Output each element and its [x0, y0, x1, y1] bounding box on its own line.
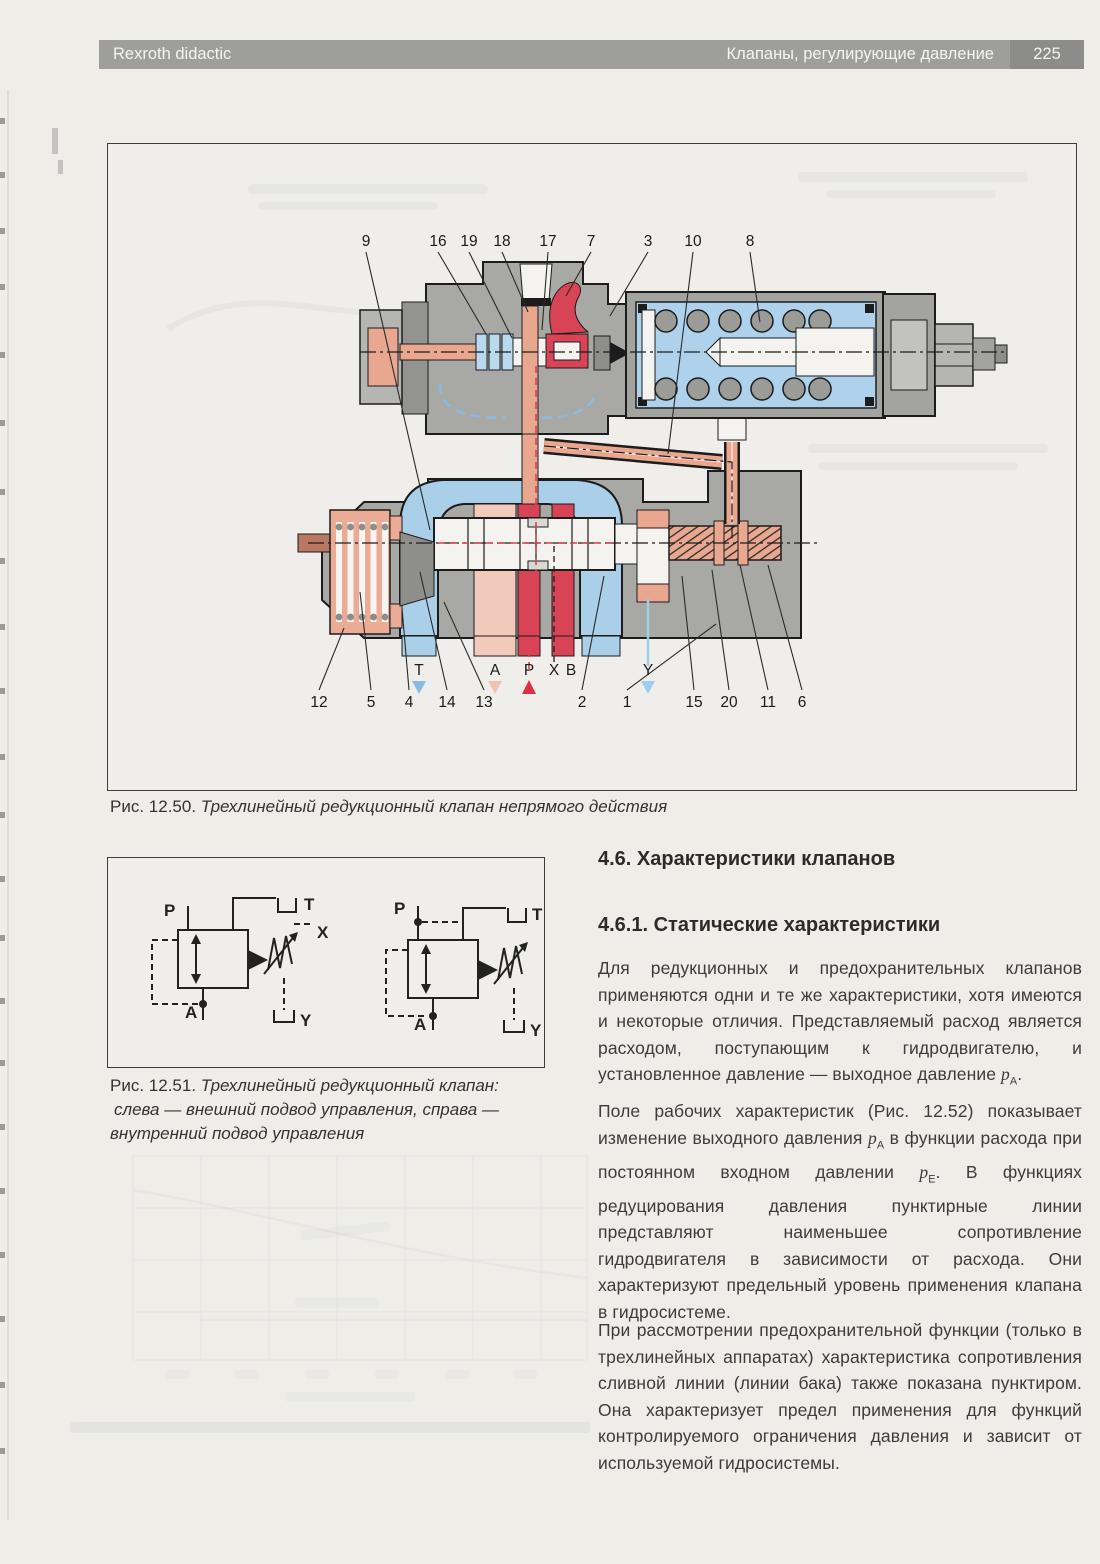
svg-text:6: 6	[798, 694, 807, 711]
svg-text:4: 4	[405, 694, 414, 711]
port-stub-a	[474, 636, 516, 656]
svg-text:T: T	[414, 662, 424, 679]
svg-text:10: 10	[684, 233, 702, 250]
svg-text:17: 17	[539, 233, 556, 250]
symbol-internal-pilot	[386, 906, 528, 1032]
figure-12-51-caption-line3: внутренний подвод управления	[110, 1124, 580, 1144]
page-header: Rexroth didactic Клапаны, регулирующие д…	[99, 40, 1084, 69]
port-marker-y-icon	[641, 681, 655, 694]
scan-tick-mark	[0, 998, 5, 1004]
scan-tick-mark	[0, 1316, 5, 1322]
caption-number: Рис. 12.51.	[110, 1076, 196, 1095]
scan-tick-mark	[0, 754, 5, 760]
paragraph-1: Для редукционных и предохранительных кла…	[598, 955, 1082, 1095]
port-marker-a-icon	[488, 681, 502, 694]
caption-text: Трехлинейный редукционный клапан:	[201, 1076, 499, 1095]
symbol-external-pilot	[152, 898, 314, 1022]
pilot-sleeve-core	[554, 342, 580, 360]
svg-text:12: 12	[310, 694, 327, 711]
port-marker-t-icon	[412, 681, 426, 694]
bolt-seat	[521, 298, 551, 306]
header-chapter-title: Клапаны, регулирующие давление	[727, 45, 1010, 64]
svg-text:19: 19	[460, 233, 477, 250]
header-brand: Rexroth didactic	[99, 45, 231, 64]
svg-text:13: 13	[475, 694, 492, 711]
svg-text:Y: Y	[300, 1011, 312, 1030]
scan-tick-mark	[0, 688, 5, 694]
valve-cross-section-diagram: 9 16 19 18 17 7 3 10 8 T A P X B Y 12 5 …	[108, 144, 1076, 790]
svg-text:T: T	[304, 895, 315, 914]
svg-text:A: A	[490, 662, 501, 679]
svg-text:7: 7	[587, 233, 596, 250]
svg-text:T: T	[532, 905, 543, 924]
svg-text:1: 1	[623, 694, 632, 711]
port-stub-t	[402, 636, 436, 656]
svg-text:X: X	[549, 662, 560, 679]
svg-text:2: 2	[578, 694, 587, 711]
page-number: 225	[1010, 40, 1084, 69]
scan-tick-mark	[0, 118, 5, 124]
svg-text:X: X	[317, 923, 329, 942]
svg-text:P: P	[524, 662, 534, 679]
end-cap-insert	[891, 320, 927, 390]
scan-tick-mark	[0, 1124, 5, 1130]
scan-smudge	[58, 160, 63, 174]
valve-symbol-diagram: P T X A Y P T A Y	[108, 858, 544, 1067]
svg-text:16: 16	[429, 233, 446, 250]
scan-tick-mark	[0, 1382, 5, 1388]
adjust-stud-tip	[995, 345, 1007, 363]
spool-end	[615, 524, 637, 564]
port-stub-tank-right	[582, 636, 620, 656]
svg-text:A: A	[185, 1003, 197, 1022]
svg-text:11: 11	[760, 694, 776, 711]
scan-tick-mark	[0, 935, 5, 941]
bleed-through-text	[70, 1422, 590, 1433]
lock-nut	[935, 324, 973, 386]
figure-12-51-caption: Рис. 12.51. Трехлинейный редукционный кл…	[110, 1076, 580, 1096]
scan-tick-mark	[0, 172, 5, 178]
svg-text:8: 8	[746, 233, 755, 250]
svg-text:Y: Y	[530, 1021, 542, 1040]
caption-number: Рис. 12.50.	[110, 797, 196, 816]
spool-notch	[528, 561, 548, 570]
svg-text:A: A	[414, 1015, 426, 1034]
caption-text: Трехлинейный редукционный клапан непрямо…	[201, 797, 667, 816]
scan-tick-mark	[0, 876, 5, 882]
scan-smudge	[52, 128, 58, 154]
spring-seat-tab	[390, 604, 402, 628]
svg-text:18: 18	[493, 233, 510, 250]
svg-text:9: 9	[362, 233, 371, 250]
svg-text:B: B	[566, 662, 576, 679]
figure-12-50-caption: Рис. 12.50. Трехлинейный редукционный кл…	[110, 797, 870, 817]
spring-disc	[642, 310, 655, 400]
port-marker-p-icon	[522, 680, 536, 694]
scan-tick-mark	[0, 1448, 5, 1454]
port-letters: T A P X B Y	[414, 662, 653, 679]
spool-notch	[528, 518, 548, 527]
scan-binding-line	[7, 90, 9, 1520]
bleed-through-chart	[105, 1148, 597, 1416]
section-heading-4-6-1: 4.6.1. Статические характеристики	[598, 914, 1082, 937]
scan-tick-mark	[0, 420, 5, 426]
figure-12-50: 9 16 19 18 17 7 3 10 8 T A P X B Y 12 5 …	[107, 143, 1077, 791]
port-stub-b	[552, 636, 574, 656]
outlet-channel-a	[474, 570, 516, 636]
adjust-stud	[973, 338, 995, 370]
figure-12-51: P T X A Y P T A Y	[107, 857, 545, 1068]
scan-tick-mark	[0, 624, 5, 630]
pressure-channel-b	[552, 570, 574, 636]
spool-flange-bottom	[637, 584, 669, 602]
svg-text:20: 20	[720, 694, 738, 711]
spool-flange-core	[637, 528, 669, 584]
paragraph-3: При рассмотрении предохранительной функц…	[598, 1317, 1082, 1476]
poppet-seat	[594, 336, 610, 370]
svg-text:14: 14	[438, 694, 456, 711]
scan-tick-mark	[0, 352, 5, 358]
section-heading-4-6: 4.6. Характеристики клапанов	[598, 848, 1082, 871]
svg-text:3: 3	[644, 233, 653, 250]
spool-flange-top	[637, 510, 669, 528]
svg-text:Y: Y	[643, 662, 653, 679]
figure-12-51-caption-line2: слева — внешний подвод управления, справ…	[114, 1100, 584, 1120]
scan-tick-mark	[0, 812, 5, 818]
pilot-plug-core	[368, 328, 398, 386]
component-labels-top: 9 16 19 18 17 7 3 10 8	[362, 233, 755, 250]
paragraph-2: Поле рабочих характеристик (Рис. 12.52) …	[598, 1098, 1082, 1325]
scan-tick-mark	[0, 558, 5, 564]
scan-tick-mark	[0, 228, 5, 234]
svg-text:15: 15	[685, 694, 702, 711]
pilot-push-rod	[400, 344, 478, 360]
scan-tick-mark	[0, 489, 5, 495]
svg-text:5: 5	[367, 694, 376, 711]
scan-tick-mark	[0, 284, 5, 290]
component-labels-bottom: 12 5 4 14 13 2 1 15 20 11 6	[310, 694, 806, 711]
scan-tick-mark	[0, 1252, 5, 1258]
svg-text:P: P	[394, 899, 405, 918]
svg-text:P: P	[164, 901, 175, 920]
scan-tick-mark	[0, 1060, 5, 1066]
scan-tick-mark	[0, 1188, 5, 1194]
